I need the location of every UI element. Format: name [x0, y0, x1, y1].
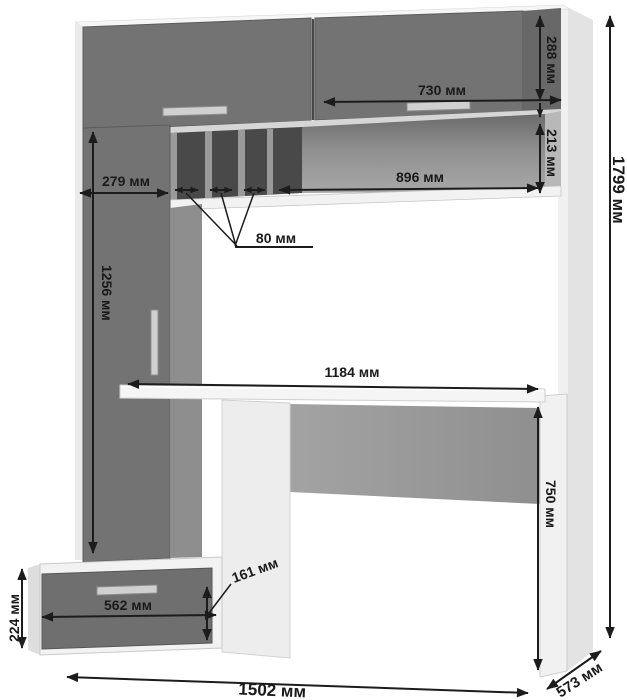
dim-overall-height: 1799 мм	[609, 16, 627, 638]
desk-middle-leg	[222, 400, 290, 658]
dim-pedestal-height: 224 мм	[6, 569, 22, 648]
right-side-face	[565, 6, 593, 673]
pigeonhole-divider	[267, 129, 273, 195]
dim-label: 80 мм	[256, 230, 296, 246]
dim-label: 1502 мм	[238, 680, 306, 700]
pedestal-left-side	[28, 564, 40, 655]
dim-label: 896 мм	[396, 169, 444, 185]
left-edge-panel	[75, 22, 83, 560]
dim-label: 750 мм	[543, 480, 559, 528]
dim-label: 279 мм	[102, 173, 150, 189]
diagram-canvas: 288 мм 730 мм 213 мм 896 мм 279 мм 80 мм…	[0, 0, 627, 700]
pigeonhole-divider	[205, 131, 212, 198]
dim-label: 730 мм	[418, 82, 466, 98]
desk-back-panel	[290, 404, 540, 504]
dim-label: 1184 мм	[325, 364, 380, 380]
dim-overall-width: 1502 мм	[67, 677, 528, 700]
dim-label: 288 мм	[544, 36, 560, 84]
upper-right-door-handle	[407, 101, 470, 111]
desk-right-leg	[540, 394, 567, 677]
drawer-handle	[97, 585, 157, 595]
pigeonhole-divider	[238, 130, 245, 196]
left-column-door-handle	[151, 310, 158, 375]
dim-label: 1799 мм	[609, 156, 627, 224]
dim-label: 224 мм	[6, 594, 22, 642]
dim-label: 213 мм	[544, 129, 560, 177]
upper-left-door-handle	[163, 106, 227, 116]
left-column-side-face	[170, 204, 202, 558]
dim-label: 1256 мм	[99, 265, 115, 321]
dim-label: 562 мм	[104, 597, 152, 613]
furniture-diagram: 288 мм 730 мм 213 мм 896 мм 279 мм 80 мм…	[0, 0, 627, 700]
